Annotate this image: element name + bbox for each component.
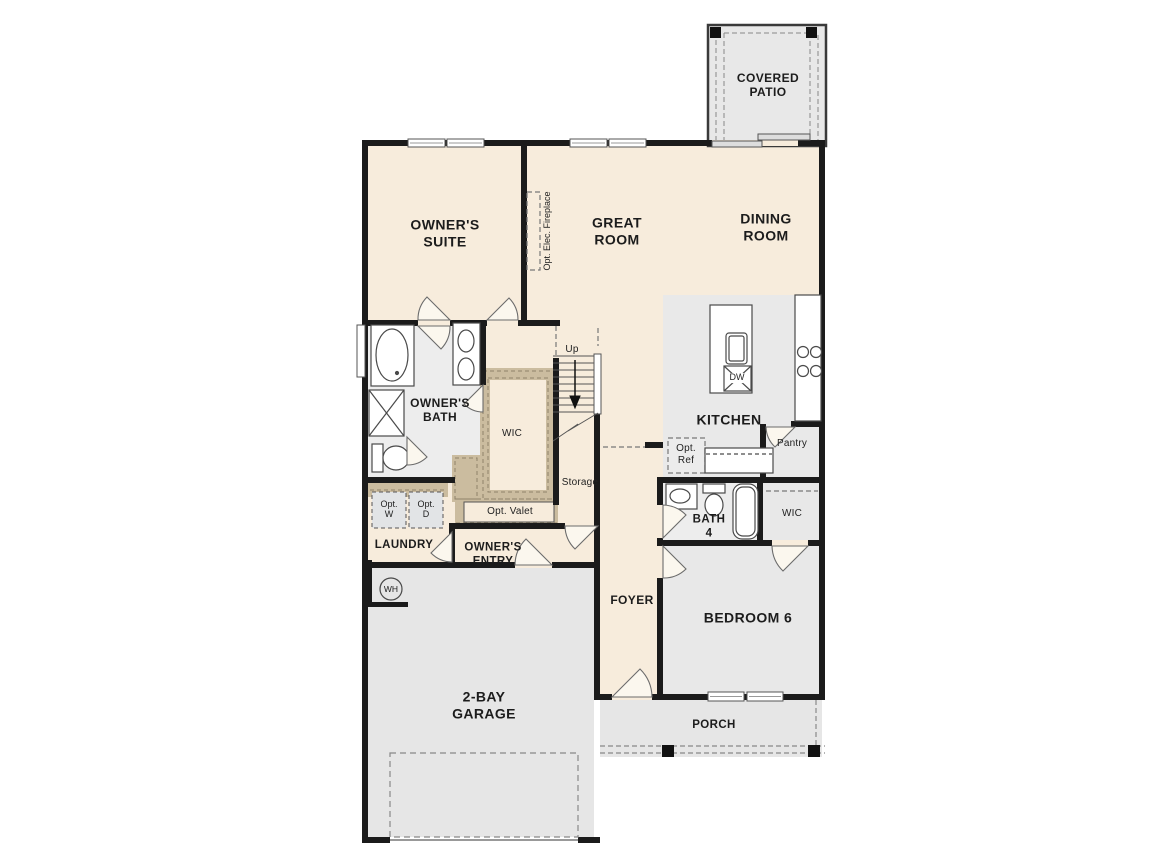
garage-label: 2-BAY GARAGE	[452, 688, 516, 721]
dining-room-label: DINING ROOM	[740, 210, 791, 243]
foyer-label: FOYER	[610, 593, 653, 607]
vanity-owner	[453, 323, 480, 385]
bathtub-owner	[371, 325, 414, 386]
porch-post	[662, 745, 674, 757]
stairs-up-label: Up	[565, 344, 578, 356]
covered-patio-label: COVERED PATIO	[737, 71, 799, 99]
dishwasher-label: DW	[728, 373, 747, 383]
water-heater-label: WH	[384, 584, 398, 594]
kitchen-counter	[705, 448, 773, 473]
opt-washer-label: Opt. W	[380, 500, 397, 520]
patio-post	[806, 27, 817, 38]
cooktop-counter	[795, 295, 822, 421]
sink-bath4	[666, 484, 697, 509]
bath4-label: BATH 4	[693, 513, 726, 540]
pantry-label: Pantry	[777, 438, 807, 450]
opt-ref-label: Opt. Ref	[676, 443, 696, 467]
patio-post	[710, 27, 721, 38]
owners-entry-label: OWNER'S ENTRY	[464, 541, 521, 568]
kitchen-label: KITCHEN	[696, 412, 761, 429]
owners-suite-label: OWNER'S SUITE	[410, 216, 479, 249]
wic-bed6-label: WIC	[782, 508, 802, 520]
porch-post	[808, 745, 820, 757]
floor-plan: COVERED PATIO OWNER'S SUITE GREAT ROOM D…	[0, 0, 1150, 856]
laundry-label: LAUNDRY	[375, 539, 434, 553]
wic-owners-label: WIC	[502, 428, 522, 440]
opt-valet-label: Opt. Valet	[487, 506, 533, 518]
toilet-owner	[372, 444, 409, 472]
porch-label: PORCH	[692, 719, 736, 733]
opt-fireplace-label: Opt. Elec. Fireplace	[543, 191, 553, 270]
great-room-label: GREAT ROOM	[592, 214, 642, 247]
toilet-bath4	[703, 484, 725, 516]
bedroom6-label: BEDROOM 6	[704, 610, 792, 627]
shower-owner	[369, 390, 404, 436]
owners-bath-label: OWNER'S BATH	[410, 396, 470, 424]
bathtub-bath4	[733, 484, 758, 539]
opt-dryer-label: Opt. D	[417, 500, 434, 520]
floor-plan-drawing	[0, 0, 1150, 856]
storage-label: Storage	[562, 477, 598, 489]
